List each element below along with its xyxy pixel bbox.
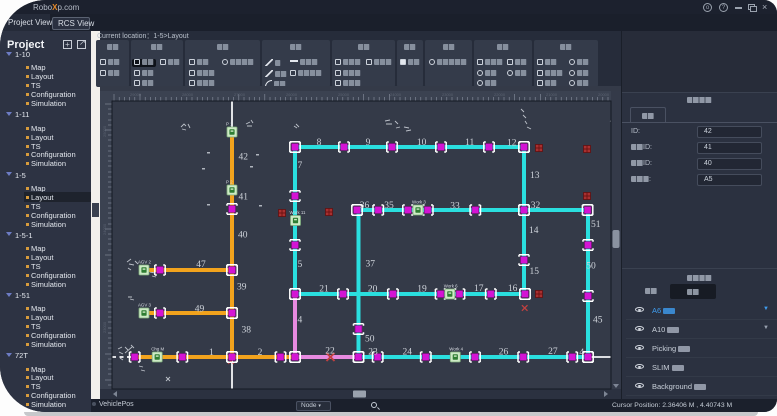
svg-text:37: 37 bbox=[366, 259, 376, 269]
svg-text:27000: 27000 bbox=[234, 92, 246, 97]
svg-text:AGV 3: AGV 3 bbox=[138, 303, 151, 308]
svg-text:36: 36 bbox=[360, 201, 370, 211]
svg-text:41: 41 bbox=[239, 192, 249, 202]
svg-text:27: 27 bbox=[548, 347, 558, 357]
svg-text:8: 8 bbox=[317, 138, 322, 148]
svg-text:15: 15 bbox=[530, 267, 540, 277]
svg-text:40: 40 bbox=[238, 230, 248, 240]
svg-text:38: 38 bbox=[242, 325, 252, 335]
svg-text:13: 13 bbox=[530, 171, 540, 181]
svg-text:29000: 29000 bbox=[130, 92, 142, 97]
svg-text:50: 50 bbox=[586, 261, 596, 271]
svg-text:42: 42 bbox=[239, 152, 249, 162]
svg-text:32: 32 bbox=[531, 201, 541, 211]
svg-text:26000: 26000 bbox=[286, 92, 298, 97]
svg-text:24000: 24000 bbox=[102, 223, 107, 235]
svg-text:4: 4 bbox=[298, 315, 303, 325]
svg-text:2: 2 bbox=[258, 348, 263, 358]
svg-text:35: 35 bbox=[384, 201, 394, 211]
svg-text:14: 14 bbox=[529, 226, 539, 236]
svg-text:49: 49 bbox=[195, 304, 205, 314]
svg-text:9: 9 bbox=[366, 138, 371, 148]
svg-text:28000: 28000 bbox=[182, 92, 194, 97]
svg-text:33: 33 bbox=[450, 201, 460, 211]
svg-text:16: 16 bbox=[508, 284, 518, 294]
svg-text:11: 11 bbox=[465, 138, 474, 148]
svg-text:7: 7 bbox=[298, 161, 303, 171]
svg-text:26: 26 bbox=[499, 348, 509, 358]
svg-text:Work 11: Work 11 bbox=[290, 210, 306, 215]
svg-text:39: 39 bbox=[237, 282, 247, 292]
svg-text:P 2: P 2 bbox=[226, 180, 233, 185]
svg-text:23000: 23000 bbox=[102, 321, 107, 333]
svg-text:1: 1 bbox=[209, 348, 214, 358]
svg-text:5: 5 bbox=[298, 260, 303, 270]
svg-text:21: 21 bbox=[319, 284, 329, 294]
svg-text:17: 17 bbox=[474, 284, 484, 294]
svg-text:Chg M: Chg M bbox=[151, 347, 164, 352]
svg-text:47: 47 bbox=[196, 260, 206, 270]
svg-text:50: 50 bbox=[365, 334, 375, 344]
svg-text:Work 4: Work 4 bbox=[449, 347, 463, 352]
svg-text:25000: 25000 bbox=[102, 125, 107, 137]
svg-text:23000: 23000 bbox=[442, 92, 454, 97]
svg-text:20000: 20000 bbox=[598, 92, 610, 97]
svg-text:45: 45 bbox=[593, 315, 603, 325]
svg-text:4: 4 bbox=[579, 348, 584, 358]
svg-text:24000: 24000 bbox=[390, 92, 402, 97]
svg-text:24: 24 bbox=[402, 348, 412, 358]
svg-text:51: 51 bbox=[591, 220, 601, 230]
svg-text:10: 10 bbox=[417, 138, 427, 148]
svg-text:21000: 21000 bbox=[546, 92, 558, 97]
svg-text:25000: 25000 bbox=[338, 92, 350, 97]
svg-text:12: 12 bbox=[507, 138, 517, 148]
svg-text:AGV 2: AGV 2 bbox=[138, 260, 151, 265]
svg-text:Work 3: Work 3 bbox=[412, 200, 426, 205]
svg-text:23: 23 bbox=[368, 347, 378, 357]
svg-text:P 1: P 1 bbox=[226, 122, 233, 127]
svg-text:22000: 22000 bbox=[494, 92, 506, 97]
svg-text:19: 19 bbox=[417, 284, 427, 294]
svg-text:20: 20 bbox=[368, 284, 378, 294]
svg-text:Work 6: Work 6 bbox=[444, 284, 458, 289]
svg-text:22: 22 bbox=[325, 346, 335, 356]
